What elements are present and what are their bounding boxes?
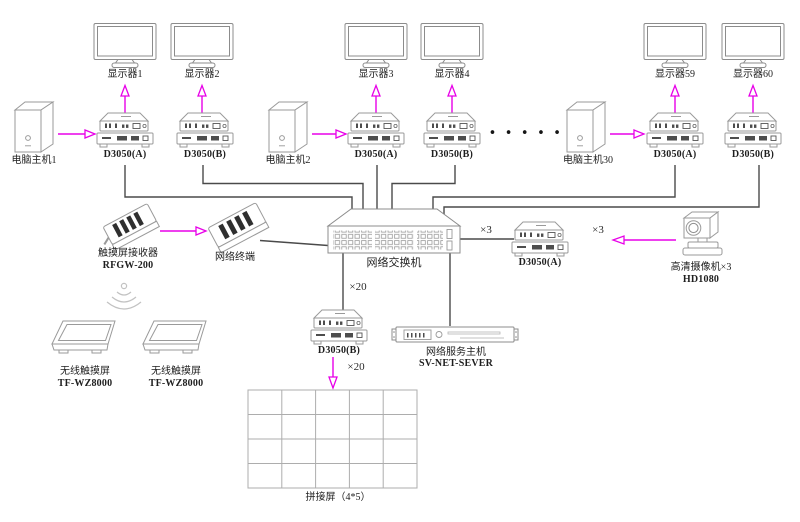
network-terminal-icon [208,203,269,253]
wifi-signal-icon [107,283,141,309]
switch-label: 网络交换机 [367,257,422,270]
monitor-label-1: 显示器1 [108,69,143,81]
monitor-label-2: 显示器2 [185,69,220,81]
touchscreen-icon-1 [52,321,115,353]
computer-tower-icon-1 [15,102,53,152]
arrow-up-monitor-4 [448,86,456,114]
camera-converter-icon [512,222,568,256]
converter-icon-1b [177,113,233,147]
touchscreen-model-2: TF-WZ8000 [149,378,204,390]
arrow-pc2-converter [312,130,346,138]
computer-tower-icon-2 [269,102,307,152]
monitor-icon-4 [421,24,483,68]
converter-icon-2a [348,113,404,147]
server-label: 网络服务主机 [426,347,486,359]
converter-label-30a: D3050(A) [654,149,697,161]
monitor-label-3: 显示器3 [359,69,394,81]
monitor-label-59: 显示器59 [655,69,695,81]
multiplier-decoder-wall: ×20 [347,361,364,374]
arrow-decoder-wall [329,357,337,388]
computer-label-30: 电脑主机30 [563,155,613,167]
server-model: SV-NET-SEVER [419,358,493,370]
camera-model: HD1080 [683,274,719,286]
multiplier-camera-link: ×3 [592,224,604,237]
receiver-model: RFGW-200 [103,260,154,272]
converter-icon-30b [725,113,781,147]
converter-label-1b: D3050(B) [184,149,226,161]
touchscreen-icon-2 [143,321,206,353]
monitor-label-4: 显示器4 [435,69,470,81]
arrow-up-monitor-60 [749,86,757,114]
arrow-camera-converter [613,236,676,244]
arrow-pc1-converter [58,130,95,138]
monitor-label-60: 显示器60 [733,69,773,81]
touchscreen-label-1: 无线触摸屏 [60,366,110,378]
monitor-icon-60 [722,24,784,68]
videowall-grid [248,390,417,488]
camera-label: 高清摄像机×3 [671,262,732,274]
arrow-up-monitor-2 [198,86,206,114]
computer-label-2: 电脑主机2 [266,155,311,167]
network-server-icon [392,327,518,342]
converter-label-2b: D3050(B) [431,149,473,161]
computer-tower-icon-30 [567,102,605,152]
monitor-icon-1 [94,24,156,68]
arrow-up-monitor-3 [372,86,380,114]
hd-camera-icon [683,212,722,255]
videowall-label: 拼接屏（4*5） [306,492,371,504]
converter-icon-1a [97,113,153,147]
arrow-up-monitor-1 [121,86,129,114]
touch-receiver-icon [97,204,160,254]
arrow-receiver-terminal [160,227,206,235]
terminal-label: 网络终端 [215,252,255,264]
receiver-label: 触摸屏接收器 [98,248,158,260]
camera-converter-label: D3050(A) [519,257,562,269]
decoder-label: D3050(B) [318,345,360,357]
decoder-icon [311,310,367,344]
multiplier-switch-camera: ×3 [480,224,492,237]
monitor-icon-59 [644,24,706,68]
multiplier-switch-decoder: ×20 [349,281,366,294]
computer-label-1: 电脑主机1 [12,155,57,167]
continuation-dots: ••••• [489,127,570,142]
monitor-icon-3 [345,24,407,68]
network-diagram: 显示器1 显示器2 显示器3 显示器4 显示器59 显示器60 电脑主机1 电脑… [0,0,800,522]
monitor-icon-2 [171,24,233,68]
touchscreen-label-2: 无线触摸屏 [151,366,201,378]
arrow-pc30-converter [610,130,644,138]
arrow-up-monitor-59 [671,86,679,114]
converter-label-2a: D3050(A) [355,149,398,161]
converter-label-1a: D3050(A) [104,149,147,161]
converter-icon-30a [647,113,703,147]
converter-label-30b: D3050(B) [732,149,774,161]
converter-icon-2b [424,113,480,147]
touchscreen-model-1: TF-WZ8000 [58,378,113,390]
network-switch-icon [328,209,460,253]
